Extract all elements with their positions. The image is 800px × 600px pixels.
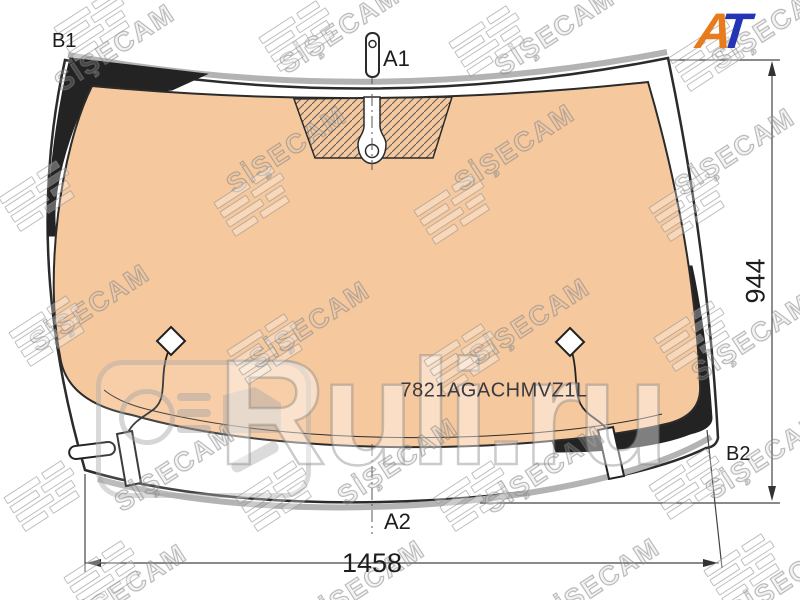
- label-b1: B1: [52, 30, 76, 53]
- dim-height-arrow-up: [768, 61, 776, 76]
- dimension-height-value: 944: [741, 258, 772, 303]
- dim-width-arrow-left: [86, 559, 101, 567]
- a1-locator-tab: [366, 33, 379, 77]
- label-b2: B2: [726, 443, 750, 466]
- windshield-diagram-page: Ruli.ru SİŞECAMSİŞECAMSİŞECAMSİŞECAMSİŞE…: [0, 0, 800, 600]
- label-a1: A1: [383, 46, 410, 72]
- dim-width-ext-right: [707, 430, 722, 568]
- part-number: 7821AGACHMVZ1L: [400, 380, 587, 403]
- dimension-width-value: 1458: [342, 548, 402, 579]
- a1-locator-hole: [369, 41, 376, 48]
- dim-height-arrow-down: [768, 486, 776, 501]
- label-a2: A2: [384, 509, 411, 535]
- at-brand-logo: T A: [694, 0, 774, 60]
- logo-letter-a: A: [693, 2, 735, 60]
- dim-width-arrow-right: [703, 559, 718, 567]
